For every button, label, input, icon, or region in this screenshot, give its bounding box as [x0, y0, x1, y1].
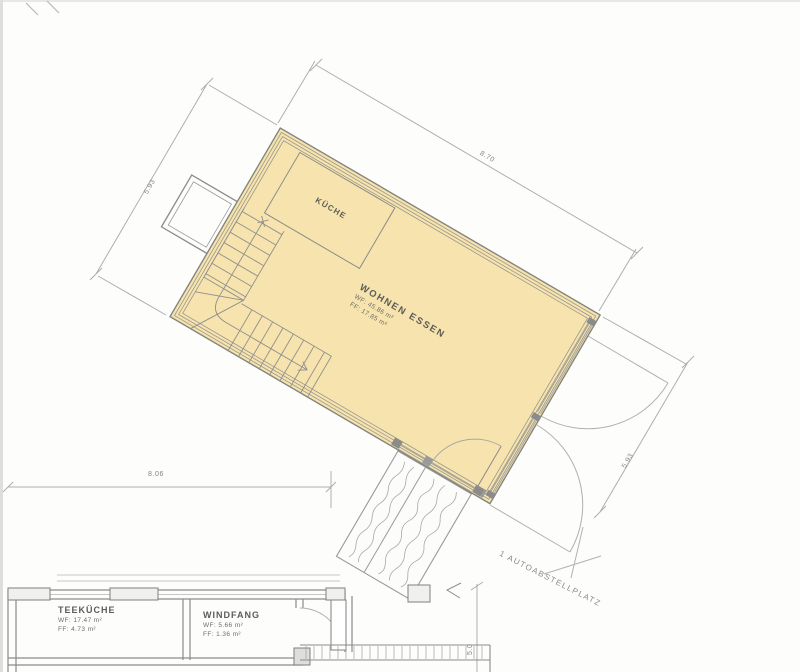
tea-kitchen-name: TEEKÜCHE	[58, 605, 116, 615]
terrace-edge	[300, 645, 490, 672]
tea-kitchen-label: TEEKÜCHE WF: 17.47 m² FF: 4.73 m²	[58, 605, 116, 633]
dimension-bottom-label: 8.06	[148, 471, 164, 478]
column-marker	[408, 585, 430, 602]
dimension-line-right	[594, 317, 694, 518]
tea-kitchen-area-2: FF: 4.73 m²	[58, 626, 116, 633]
floor-plan-canvas: KÜCHE WOHNEN ESSEN WF: 45.86 m² FF: 17.8…	[0, 0, 800, 672]
parking-boundary-marks	[544, 527, 601, 578]
vestibule-name: WINDFANG	[203, 610, 260, 620]
corner-tick-marks	[26, 1, 59, 15]
tea-kitchen-area-1: WF: 17.47 m²	[58, 617, 116, 624]
vestibule-label: WINDFANG WF: 5.66 m² FF: 1.36 m²	[203, 610, 260, 638]
chevron-mark	[447, 583, 461, 598]
dimension-parking-label: 5.0	[467, 643, 474, 655]
vestibule-area-2: FF: 1.36 m²	[203, 631, 260, 638]
dimension-line-parking	[471, 582, 483, 672]
dimension-line-bottom	[3, 471, 336, 508]
vestibule-area-1: WF: 5.66 m²	[203, 622, 260, 629]
roof-edge-lines	[57, 575, 340, 581]
